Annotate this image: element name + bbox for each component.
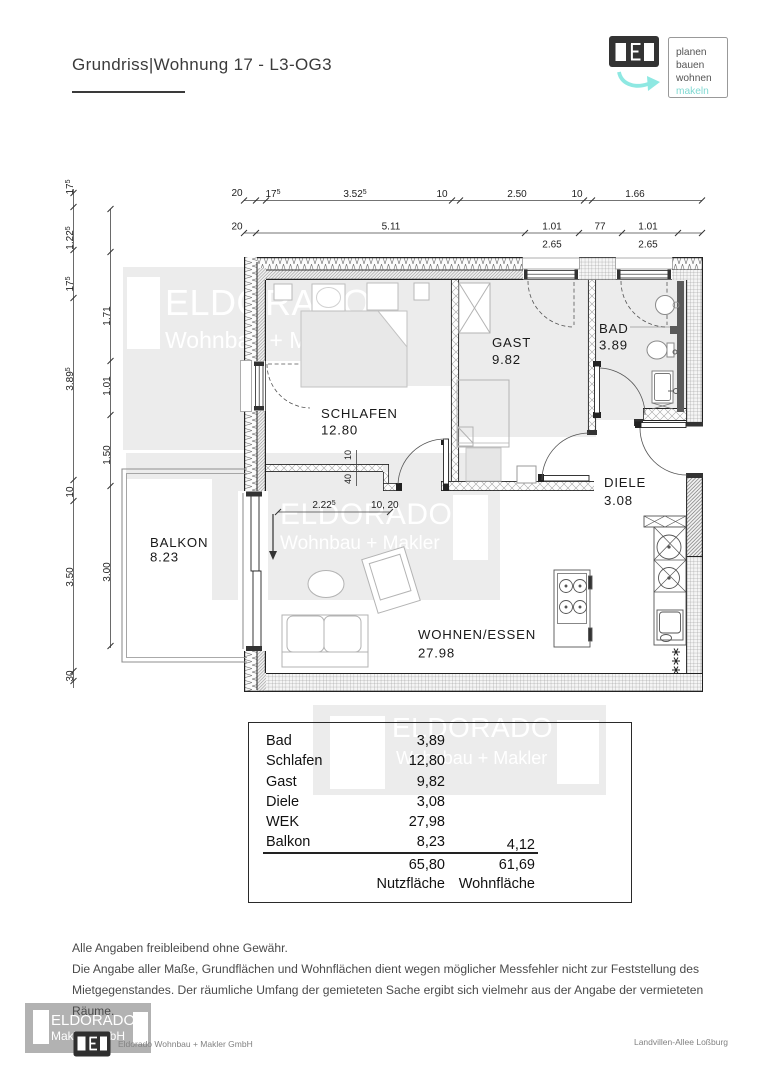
- svg-text:30: 30: [65, 670, 76, 682]
- svg-text:1.01: 1.01: [542, 222, 562, 233]
- svg-text:9.82: 9.82: [492, 352, 521, 367]
- svg-text:3.00: 3.00: [102, 562, 113, 582]
- svg-text:10: 10: [343, 450, 353, 460]
- svg-text:1.50: 1.50: [102, 445, 113, 465]
- svg-text:1.01: 1.01: [638, 222, 658, 233]
- svg-text:175: 175: [65, 276, 76, 291]
- svg-text:BALKON: BALKON: [150, 535, 208, 550]
- svg-text:40: 40: [343, 474, 353, 484]
- svg-text:SCHLAFEN: SCHLAFEN: [321, 406, 398, 421]
- svg-text:1.66: 1.66: [625, 189, 645, 200]
- svg-text:3.50: 3.50: [65, 567, 76, 587]
- svg-text:3.525: 3.525: [343, 189, 366, 200]
- svg-text:2.225: 2.225: [312, 500, 335, 511]
- svg-text:175: 175: [65, 179, 76, 194]
- svg-text:10: 10: [65, 486, 76, 498]
- svg-text:DIELE: DIELE: [604, 475, 646, 490]
- svg-text:WOHNEN/ESSEN: WOHNEN/ESSEN: [418, 627, 536, 642]
- svg-text:3.08: 3.08: [604, 493, 633, 508]
- svg-text:10,: 10,: [371, 500, 385, 511]
- svg-text:8.23: 8.23: [150, 550, 179, 565]
- svg-text:77: 77: [594, 222, 606, 233]
- svg-text:GAST: GAST: [492, 335, 531, 350]
- svg-text:3.895: 3.895: [65, 367, 76, 390]
- svg-text:20: 20: [231, 188, 243, 199]
- svg-text:BAD: BAD: [599, 321, 629, 336]
- svg-text:1.01: 1.01: [102, 376, 113, 396]
- svg-text:3.89: 3.89: [599, 338, 628, 353]
- svg-text:1.225: 1.225: [65, 226, 76, 249]
- svg-text:20: 20: [231, 222, 243, 233]
- svg-text:27.98: 27.98: [418, 646, 455, 661]
- svg-text:2.65: 2.65: [542, 240, 562, 251]
- svg-text:10: 10: [436, 189, 448, 200]
- svg-text:10: 10: [571, 189, 583, 200]
- svg-text:175: 175: [265, 189, 280, 200]
- svg-text:12.80: 12.80: [321, 423, 358, 438]
- svg-text:20: 20: [387, 500, 399, 511]
- svg-text:1.71: 1.71: [102, 306, 113, 326]
- svg-text:2.50: 2.50: [507, 189, 527, 200]
- svg-text:2.65: 2.65: [638, 240, 658, 251]
- svg-text:5.11: 5.11: [382, 222, 401, 233]
